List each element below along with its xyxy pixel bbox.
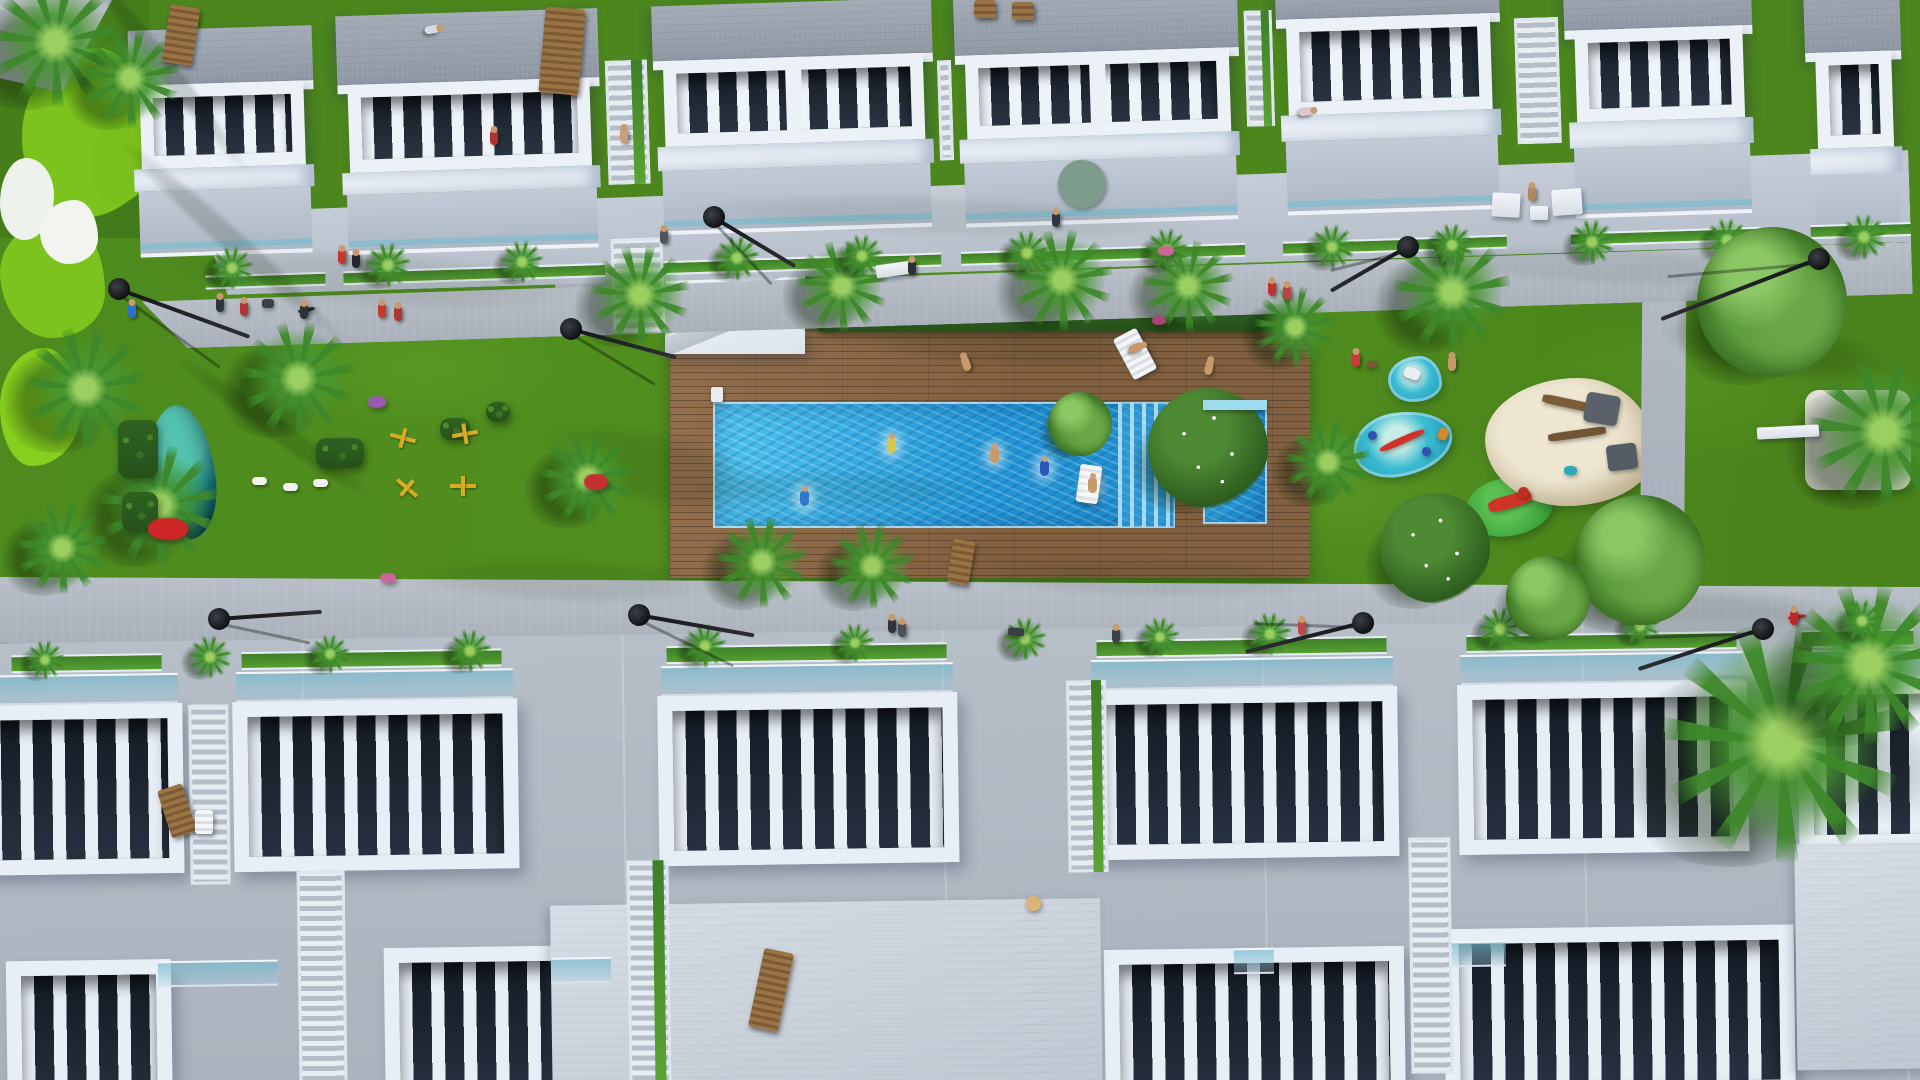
person — [1052, 212, 1060, 227]
palm-tree — [365, 242, 411, 288]
palm-tree — [590, 245, 690, 345]
palm-tree — [1140, 617, 1180, 657]
play-equipment — [1422, 447, 1431, 456]
person — [128, 303, 136, 318]
play-equipment — [1058, 160, 1106, 208]
play-equipment — [1379, 428, 1426, 454]
palm-tree — [1430, 223, 1474, 267]
palm-tree — [1309, 224, 1355, 270]
bush — [316, 438, 364, 468]
aerial-render-stage — [0, 0, 1920, 1080]
cast-shadow — [960, 553, 1351, 604]
bench — [1491, 192, 1520, 217]
outdoor-gym-equipment — [388, 425, 418, 451]
person — [1298, 620, 1306, 635]
street-lamp-icon — [1808, 248, 1830, 270]
play-equipment — [1583, 391, 1622, 426]
bench — [1530, 206, 1548, 220]
person — [1448, 356, 1456, 371]
swimmer — [887, 437, 896, 453]
play-equipment — [1008, 627, 1025, 636]
tree — [1048, 392, 1112, 456]
play-equipment — [1203, 400, 1267, 410]
palm-tree — [1004, 230, 1050, 276]
swimmer — [1040, 460, 1049, 476]
cast-shadow — [690, 467, 991, 512]
sun-lounger — [748, 948, 794, 1032]
person — [888, 618, 896, 633]
person — [1528, 186, 1536, 201]
palm-tree — [25, 640, 65, 680]
swimmer — [1088, 477, 1097, 493]
swimmer — [990, 447, 999, 463]
palm-tree — [1254, 286, 1336, 368]
palm-tree — [835, 623, 875, 663]
tree — [1575, 495, 1705, 625]
palm-tree — [1840, 599, 1884, 643]
person — [1204, 359, 1215, 375]
outdoor-gym-equipment — [450, 422, 479, 446]
person — [378, 303, 386, 318]
person — [1790, 610, 1798, 625]
person — [1298, 106, 1314, 116]
play-equipment — [262, 299, 274, 308]
street-lamp-icon — [208, 608, 230, 630]
play-equipment — [1548, 426, 1607, 442]
flower-bed — [148, 518, 188, 540]
decoration-layer — [0, 0, 1920, 1080]
person — [216, 297, 224, 312]
play-equipment — [1366, 361, 1377, 368]
palm-tree — [241, 321, 356, 436]
bush — [486, 402, 510, 422]
flower-bed — [380, 573, 396, 583]
person — [490, 130, 498, 145]
sun-lounger — [1012, 2, 1034, 20]
play-equipment — [1606, 442, 1639, 471]
person — [908, 260, 916, 275]
palm-tree — [448, 629, 492, 673]
sun-lounger — [538, 6, 585, 95]
person — [660, 229, 668, 244]
palm-tree — [500, 240, 544, 284]
flower-bed — [584, 474, 608, 490]
tree — [1506, 556, 1590, 640]
street-lamp-icon — [1397, 236, 1419, 258]
animal — [283, 483, 298, 491]
sun-lounger — [162, 4, 201, 66]
outdoor-gym-equipment — [450, 476, 476, 496]
person — [1352, 352, 1360, 367]
palm-tree — [716, 516, 808, 608]
palm-tree — [1285, 419, 1371, 505]
person — [300, 304, 308, 319]
play-equipment — [1403, 366, 1422, 382]
palm-tree — [16, 502, 108, 594]
outdoor-gym-equipment — [391, 472, 424, 504]
palm-tree — [1003, 617, 1047, 661]
animal — [252, 477, 267, 485]
street-lamp-icon — [108, 278, 130, 300]
play-equipment — [1368, 431, 1377, 440]
street-lamp-icon — [628, 604, 650, 626]
swimmer — [800, 490, 809, 506]
street-lamp-icon — [560, 318, 582, 340]
person — [240, 301, 248, 316]
sun-lounger — [157, 783, 197, 839]
play-equipment — [1564, 466, 1577, 475]
person — [1268, 281, 1276, 296]
palm-tree — [310, 634, 350, 674]
sun-lounger — [195, 810, 213, 834]
play-equipment — [1026, 896, 1041, 911]
sun-lounger — [974, 0, 996, 18]
lamp-pole-shadow — [218, 622, 310, 644]
person — [394, 306, 402, 321]
bush — [118, 420, 158, 478]
cast-shadow — [689, 186, 1210, 248]
tree — [1380, 493, 1490, 603]
flower-bed — [368, 396, 386, 408]
flower-bed — [1158, 246, 1174, 256]
palm-tree — [1569, 219, 1615, 265]
street-lamp-icon — [703, 206, 725, 228]
palm-tree — [188, 635, 232, 679]
gym-bar — [461, 476, 465, 496]
palm-tree — [210, 246, 254, 290]
person — [898, 622, 906, 637]
person — [338, 249, 346, 264]
person — [1112, 628, 1120, 643]
flower-bed — [1152, 316, 1166, 325]
bench — [1551, 188, 1583, 216]
animal — [313, 479, 328, 487]
play-equipment — [711, 387, 723, 402]
person — [1283, 285, 1291, 300]
street-lamp-icon — [1752, 618, 1774, 640]
play-equipment — [1436, 427, 1450, 442]
cast-shadow — [399, 550, 730, 609]
lamp-pole — [218, 610, 322, 621]
person — [352, 253, 360, 268]
street-lamp-icon — [1352, 612, 1374, 634]
person — [424, 24, 440, 34]
play-equipment — [1518, 487, 1529, 498]
palm-tree — [1841, 214, 1887, 260]
palm-tree — [829, 523, 915, 609]
person — [620, 128, 628, 143]
